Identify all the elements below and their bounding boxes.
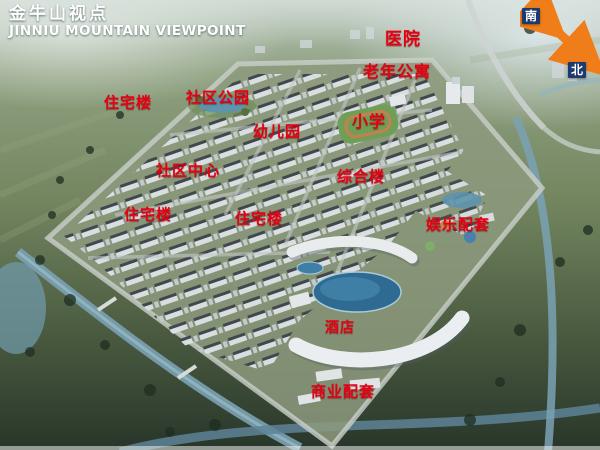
viewpoint-rendering: 金牛山视点 JINNIU MOUNTAIN VIEWPOINT 南 北 医院老年… <box>0 0 600 450</box>
map-label-community-center: 社区中心 <box>156 160 220 181</box>
title-chinese: 金牛山视点 <box>9 5 246 24</box>
map-label-residential-1: 住宅楼 <box>104 92 152 113</box>
compass-south-label: 南 <box>522 8 540 24</box>
map-label-senior-apartments: 老年公寓 <box>363 58 431 82</box>
compass: 南 北 <box>520 0 600 90</box>
map-label-hospital: 医院 <box>385 25 421 50</box>
map-label-kindergarten: 幼儿园 <box>253 121 301 142</box>
title-english: JINNIU MOUNTAIN VIEWPOINT <box>9 24 246 39</box>
map-label-comprehensive-building: 综合楼 <box>337 166 385 187</box>
map-label-community-park: 社区公园 <box>186 87 250 108</box>
page-title: 金牛山视点 JINNIU MOUNTAIN VIEWPOINT <box>9 5 246 39</box>
map-label-commercial-facilities: 商业配套 <box>311 381 375 402</box>
map-label-residential-3: 住宅楼 <box>235 208 283 229</box>
bottom-border <box>0 446 600 450</box>
compass-north-label: 北 <box>568 62 586 78</box>
map-label-primary-school: 小学 <box>352 108 386 132</box>
aerial-rendering-scene <box>0 0 600 450</box>
map-label-hotel: 酒店 <box>325 317 355 337</box>
map-label-residential-2: 住宅楼 <box>124 204 172 225</box>
map-label-entertainment-facilities: 娱乐配套 <box>426 214 490 235</box>
